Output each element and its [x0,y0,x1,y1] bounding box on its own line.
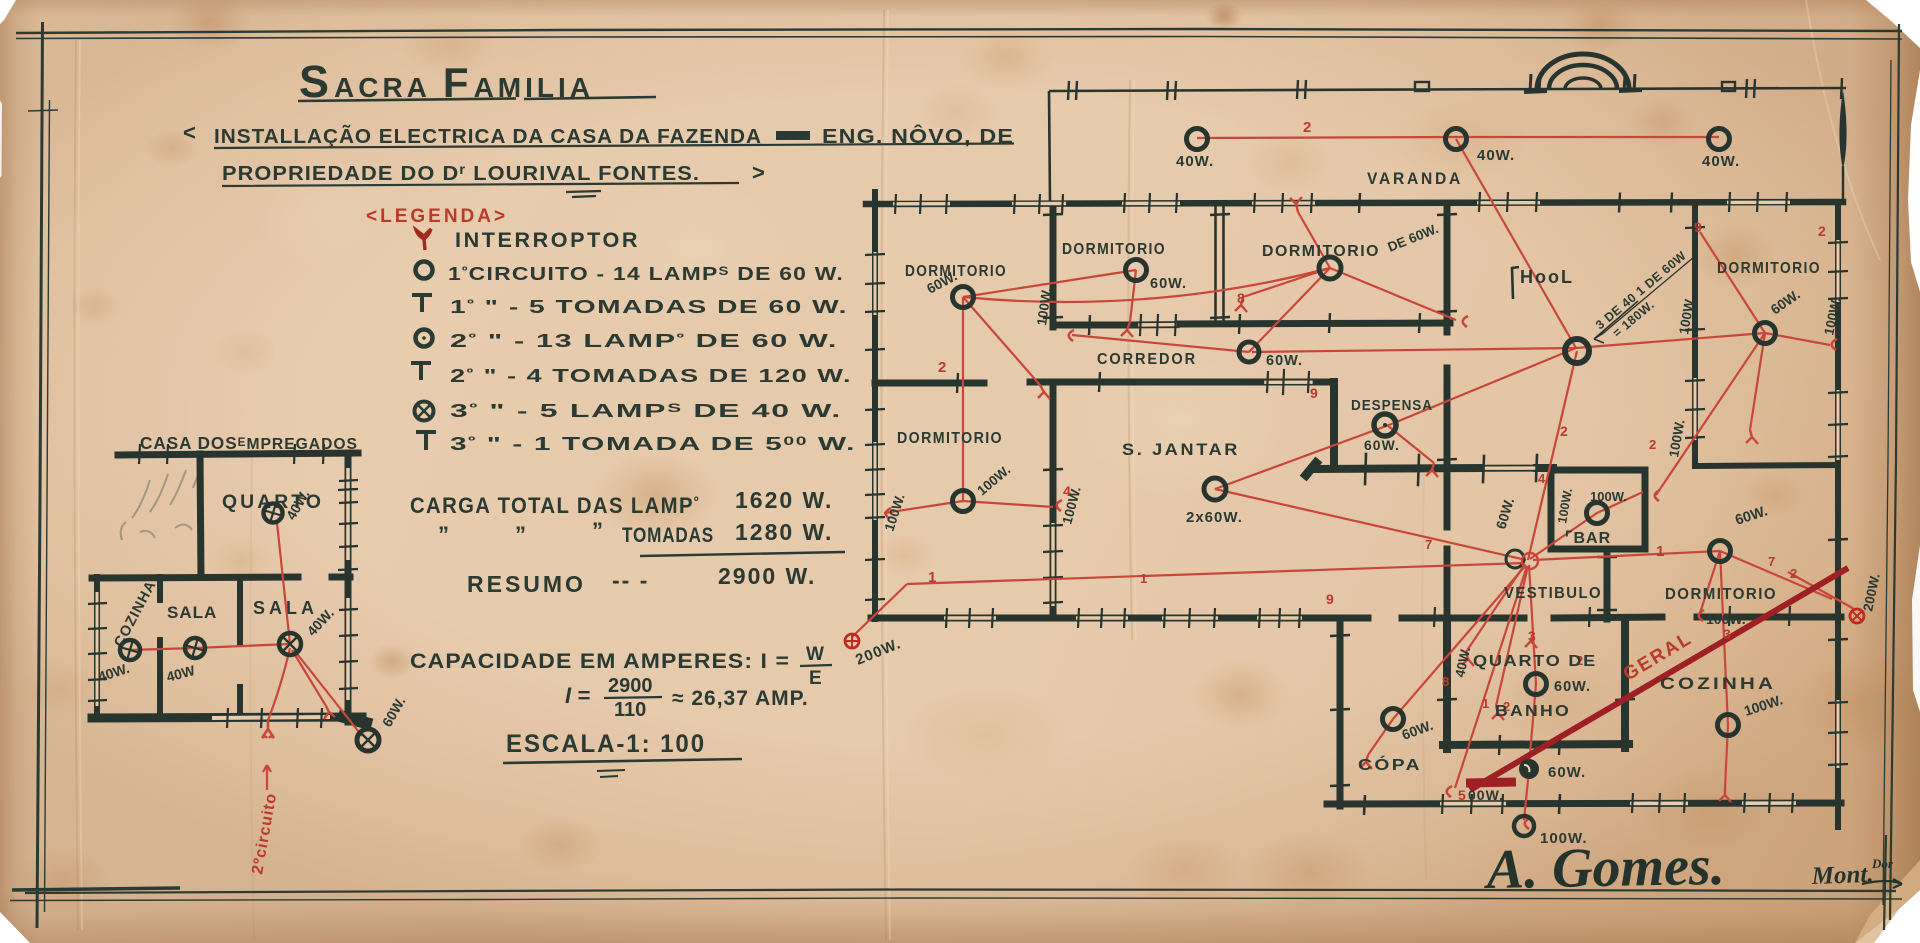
svg-text:60W.: 60W. [1150,276,1187,292]
svg-text:CARGA TOTAL DAS LAMPº: CARGA TOTAL DAS LAMPº [410,493,700,518]
svg-text:100W.: 100W. [974,462,1013,498]
svg-text:100W.: 100W. [1706,611,1746,627]
svg-text:I =: I = [565,683,590,708]
svg-text:2: 2 [1560,423,1568,439]
svg-text:VARANDA: VARANDA [1367,169,1463,188]
svg-text:1: 1 [1140,571,1147,586]
svg-text:QUARTO DE: QUARTO DE [1473,653,1597,670]
svg-text:60W.: 60W. [1733,503,1769,528]
svg-text:40W.: 40W. [1477,147,1515,164]
svg-text:3: 3 [1723,626,1731,642]
svg-text:2º " - 4 TOMADAS DE 1: 2º " - 4 TOMADAS DE 120 W. [450,365,852,386]
svg-text:60W.: 60W. [1548,764,1586,781]
svg-text:SALA: SALA [167,603,217,622]
svg-text:4: 4 [1538,471,1546,486]
svg-text:40W.: 40W. [1452,645,1473,678]
svg-text:”: ” [592,518,603,543]
svg-text:9: 9 [1326,591,1334,607]
svg-text:DORMITORIO: DORMITORIO [1062,241,1166,258]
svg-text:3: 3 [1528,628,1536,644]
svg-text:COZINHA: COZINHA [1660,675,1776,693]
svg-text:>: > [752,160,765,185]
svg-text:110: 110 [614,699,646,721]
svg-text:2: 2 [1649,437,1656,452]
svg-text:60W.: 60W. [379,694,409,730]
svg-text:3º " - 5 LAMPS DE 40: 3º " - 5 LAMPS DE 40 W. [450,400,842,421]
svg-text:2: 2 [938,359,946,376]
svg-text:ESCALA-1: 100: ESCALA-1: 100 [506,730,706,758]
svg-text:RESUMO: RESUMO [467,571,586,597]
svg-text:Mont.: Mont. [1810,861,1874,890]
svg-text:<LEGENDA>: <LEGENDA> [366,206,508,227]
svg-text:9: 9 [1310,385,1318,401]
svg-text:CAPACIDADE EM AMPERES: I =: CAPACIDADE EM AMPERES: I = [410,650,790,673]
svg-text:Dor: Dor [1871,856,1894,871]
svg-text:1: 1 [928,569,936,586]
svg-text:200W.: 200W. [1860,572,1883,613]
svg-text:1º " - 5 TOMADAS DE 6: 1º " - 5 TOMADAS DE 60 W. [450,296,848,317]
svg-text:100W.: 100W. [1742,691,1785,718]
svg-text:8: 8 [1237,290,1245,306]
svg-text:A. Gomes.: A. Gomes. [1483,835,1725,901]
svg-text:2: 2 [1303,119,1311,136]
svg-text:CÓPA: CÓPA [1358,756,1422,774]
svg-text:BANHO: BANHO [1495,703,1571,720]
svg-text:VESTIBULO: VESTIBULO [1504,585,1602,602]
svg-text:2900 W.: 2900 W. [718,563,816,589]
svg-text:00W.: 00W. [1468,787,1504,803]
svg-text:DESPENSA: DESPENSA [1351,398,1433,414]
svg-text:60W.: 60W. [1266,353,1303,369]
svg-text:60W.: 60W. [1768,286,1803,317]
svg-text:5: 5 [1458,787,1466,803]
svg-text:40W: 40W [165,662,198,685]
svg-text:COZINHA: COZINHA [111,578,159,650]
svg-text:DORMITORIO: DORMITORIO [1665,586,1777,603]
svg-text:2900: 2900 [608,675,653,697]
svg-text:1280 W.: 1280 W. [735,519,833,545]
svg-text:DORMITORIO: DORMITORIO [897,430,1003,447]
svg-text:60W.: 60W. [1364,437,1400,453]
svg-text:100W.: 100W. [1555,487,1575,524]
svg-text:1620 W.: 1620 W. [735,487,833,513]
svg-text:1ºCIRCUITO - 14 LAMPS DE 60 W.: 1ºCIRCUITO - 14 LAMPS DE 60 W. [448,263,844,284]
svg-text:”: ” [438,522,449,547]
svg-text:60W.: 60W. [1493,496,1518,531]
svg-text:-- -: -- - [612,567,649,593]
svg-text:TOMADAS: TOMADAS [622,524,714,547]
svg-text:DORMITORIO: DORMITORIO [1262,243,1380,260]
svg-text:7: 7 [1425,537,1432,552]
svg-text:≈ 26,37 AMP.: ≈ 26,37 AMP. [672,687,809,710]
svg-text:CORREDOR: CORREDOR [1097,351,1197,368]
svg-text:2x60W.: 2x60W. [1186,509,1243,526]
svg-text:2: 2 [1790,566,1797,581]
svg-text:100W.: 100W. [1590,489,1627,504]
svg-text:2º " - 13 LAMPº DE 60: 2º " - 13 LAMPº DE 60 W. [450,330,838,351]
svg-text:W: W [806,644,824,665]
svg-text:7: 7 [1768,554,1775,569]
svg-text:1: 1 [1482,696,1489,711]
svg-text:60W.: 60W. [1554,679,1591,695]
svg-text:8: 8 [1442,674,1449,689]
svg-text:<: < [183,120,196,145]
svg-text:40W.: 40W. [1702,153,1740,170]
svg-text:2: 2 [1818,223,1826,239]
svg-text:1: 1 [1656,543,1664,560]
svg-text:9: 9 [1694,219,1702,235]
svg-text:⌜BAR: ⌜BAR [1565,530,1611,547]
svg-text:200W.: 200W. [853,635,903,669]
svg-text:2ºcircuito: 2ºcircuito [249,791,280,875]
svg-text:HooL: HooL [1520,267,1574,287]
svg-text:PROPRIEDADE DO Dr LOURIVAL FON: PROPRIEDADE DO Dr LOURIVAL FONTES. [222,161,700,185]
svg-text:DE 60W.: DE 60W. [1386,221,1441,255]
svg-text:40W.: 40W. [96,660,131,685]
svg-text:INTERROPTOR: INTERROPTOR [455,229,640,252]
svg-text:DORMITORIO: DORMITORIO [1717,260,1821,277]
svg-text:3º " - 1 TOMADA DE 50: 3º " - 1 TOMADA DE 500 W. [450,433,856,454]
svg-text:E: E [809,668,822,689]
svg-text:40W.: 40W. [1176,153,1214,170]
svg-text:S. JANTAR: S. JANTAR [1122,440,1240,459]
svg-text:”: ” [515,522,526,547]
